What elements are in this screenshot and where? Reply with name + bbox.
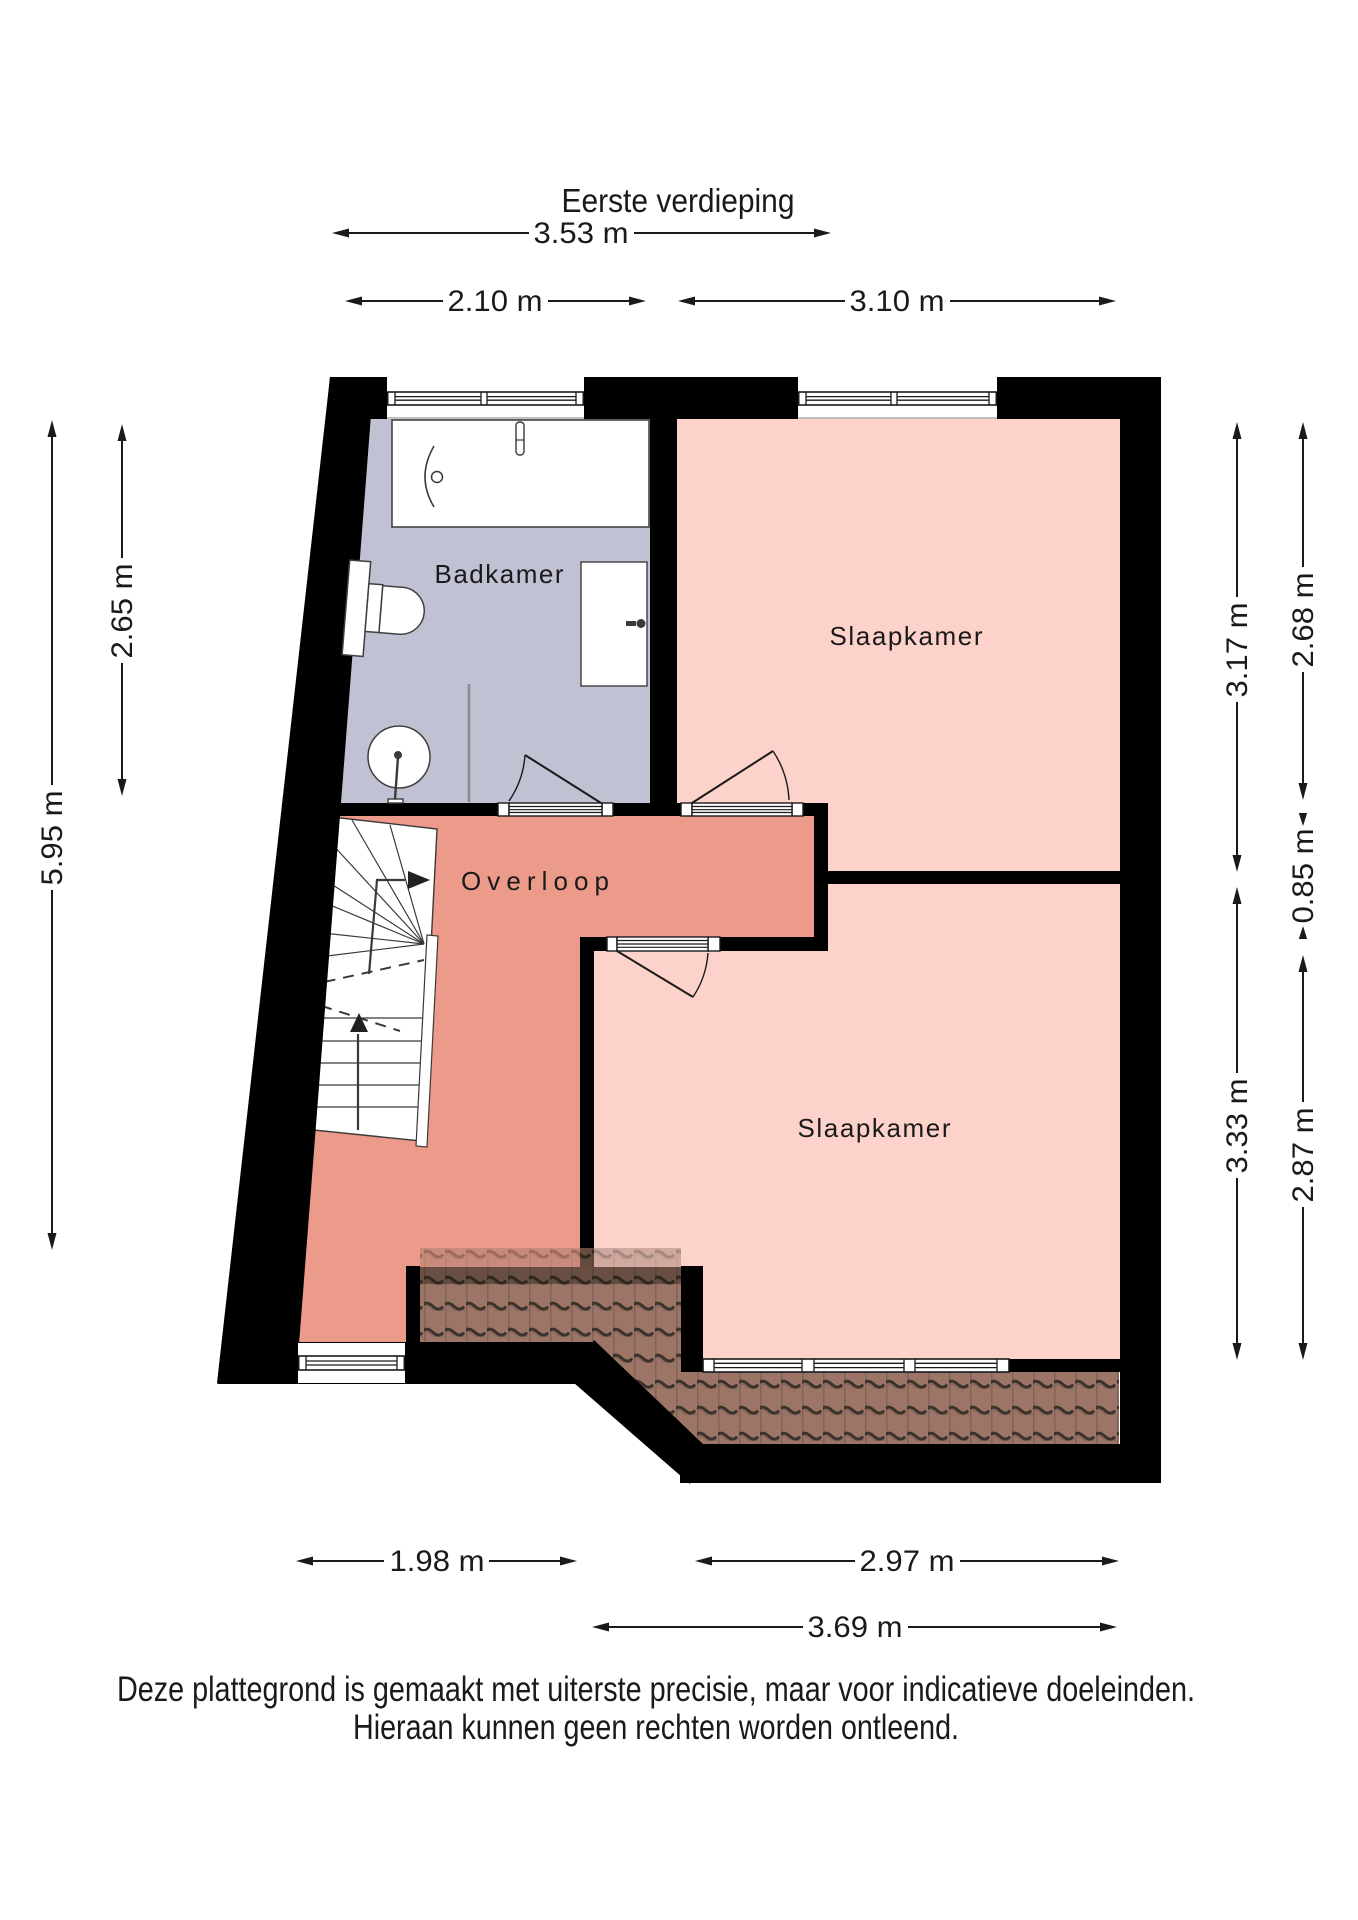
svg-text:Eerste verdieping: Eerste verdieping xyxy=(562,182,795,219)
svg-text:Slaapkamer: Slaapkamer xyxy=(798,1113,953,1143)
svg-text:5.95 m: 5.95 m xyxy=(36,791,69,886)
svg-text:3.17 m: 3.17 m xyxy=(1221,603,1254,698)
svg-text:2.10 m: 2.10 m xyxy=(448,285,543,318)
svg-text:1.98 m: 1.98 m xyxy=(390,1545,485,1578)
svg-text:Hieraan kunnen geen rechten wo: Hieraan kunnen geen rechten worden ontle… xyxy=(353,1708,959,1747)
svg-text:3.33 m: 3.33 m xyxy=(1221,1079,1254,1174)
svg-text:3.10 m: 3.10 m xyxy=(850,285,945,318)
svg-text:Deze plattegrond is gemaakt me: Deze plattegrond is gemaakt met uiterste… xyxy=(117,1670,1195,1709)
svg-text:2.68 m: 2.68 m xyxy=(1287,573,1320,668)
svg-text:2.87 m: 2.87 m xyxy=(1287,1108,1320,1203)
svg-text:Badkamer: Badkamer xyxy=(435,559,566,589)
svg-text:2.65 m: 2.65 m xyxy=(106,564,139,659)
svg-text:3.69 m: 3.69 m xyxy=(808,1611,903,1644)
svg-text:Slaapkamer: Slaapkamer xyxy=(830,621,985,651)
svg-text:3.53 m: 3.53 m xyxy=(534,217,629,250)
svg-text:2.97 m: 2.97 m xyxy=(860,1545,955,1578)
svg-text:0.85 m: 0.85 m xyxy=(1287,829,1320,924)
